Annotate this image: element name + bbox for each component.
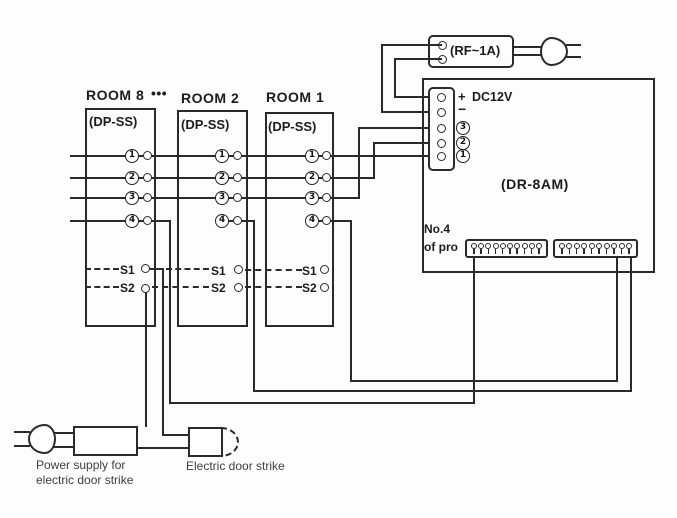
dr-note-line1: No.4 bbox=[424, 222, 450, 236]
rf-plug-prong-bottom bbox=[566, 56, 581, 58]
connector-strip-1 bbox=[465, 239, 548, 258]
ac-plug bbox=[28, 424, 56, 454]
rf-unit-label: (RF~1A) bbox=[450, 43, 500, 58]
room8-terminal-1: 1 bbox=[125, 149, 139, 163]
room1-terminal-4: 4 bbox=[305, 214, 319, 228]
dashed-s2-room8 bbox=[85, 286, 119, 288]
connector-pin bbox=[574, 243, 580, 249]
wire-room2-t4-run bbox=[253, 390, 632, 392]
room1-terminal-3-contact bbox=[322, 193, 331, 202]
room8-terminal-3: 3 bbox=[125, 191, 139, 205]
room2-terminal-2: 2 bbox=[215, 171, 229, 185]
door-strike bbox=[188, 427, 223, 457]
room2-s2-label: S2 bbox=[211, 281, 226, 295]
wiring-diagram: ROOM 8 ••• ROOM 2 ROOM 1 (DP-SS) (DP-SS)… bbox=[0, 0, 677, 518]
room8-s1-terminal bbox=[141, 264, 150, 273]
connector-pin bbox=[507, 243, 513, 249]
wire-s1-drop bbox=[162, 269, 164, 436]
room1-s1-label: S1 bbox=[302, 264, 317, 278]
rf-power-plug bbox=[540, 37, 568, 66]
dc-minus-label: − bbox=[458, 101, 466, 117]
room8-terminal-1-contact bbox=[143, 151, 152, 160]
room8-terminal-2: 2 bbox=[125, 171, 139, 185]
room-ellipsis: ••• bbox=[151, 85, 167, 101]
wire-row3-riser bbox=[358, 127, 360, 199]
room2-s1-label: S1 bbox=[211, 264, 226, 278]
connector-pin bbox=[566, 243, 572, 249]
room1-s2-terminal bbox=[320, 283, 329, 292]
wire-room8-t4-rise bbox=[473, 258, 475, 404]
connector-pin bbox=[485, 243, 491, 249]
wire-room8-t4 bbox=[70, 220, 171, 222]
ac-plug-prong-top bbox=[14, 431, 30, 433]
connector-strip-2 bbox=[553, 239, 638, 258]
door-strike-label: Electric door strike bbox=[186, 459, 285, 473]
dashed-s1-gap2 bbox=[245, 269, 302, 271]
door-strike-cap bbox=[221, 427, 239, 457]
ac-cord-top bbox=[54, 432, 74, 434]
connector-pin bbox=[596, 243, 602, 249]
room8-terminal-4: 4 bbox=[125, 214, 139, 228]
room2-terminal-1: 1 bbox=[215, 149, 229, 163]
ac-cord-bottom bbox=[54, 446, 74, 448]
dr-circled-terminal-3: 3 bbox=[456, 121, 470, 135]
connector-pin bbox=[589, 243, 595, 249]
room1-s2-label: S2 bbox=[302, 281, 317, 295]
rf-plug-prong-top bbox=[566, 44, 581, 46]
connector-pin bbox=[493, 243, 499, 249]
room8-s1-label: S1 bbox=[120, 263, 135, 277]
connector-pin bbox=[478, 243, 484, 249]
power-supply-label-line2: electric door strike bbox=[36, 473, 133, 487]
room2-title: ROOM 2 bbox=[181, 90, 239, 106]
wire-rf-minus-drop bbox=[381, 44, 383, 113]
connector-pin bbox=[536, 243, 542, 249]
room8-terminal-3-contact bbox=[143, 193, 152, 202]
room2-terminal-3: 3 bbox=[215, 191, 229, 205]
wire-ps-to-strike bbox=[136, 447, 190, 449]
room8-s2-terminal bbox=[141, 284, 150, 293]
connector-pin bbox=[581, 243, 587, 249]
room2-terminal-1-contact bbox=[233, 151, 242, 160]
connector-pin bbox=[471, 243, 477, 249]
wire-room2-t4-rise bbox=[630, 258, 632, 392]
room2-terminal-4-contact bbox=[233, 216, 242, 225]
room1-subtitle: (DP-SS) bbox=[268, 119, 316, 134]
dc-terminal-2 bbox=[437, 139, 446, 148]
connector-pin bbox=[619, 243, 625, 249]
connector-pin bbox=[604, 243, 610, 249]
room1-title: ROOM 1 bbox=[266, 89, 324, 105]
room2-terminal-4: 4 bbox=[215, 214, 229, 228]
wire-room8-t4-run bbox=[169, 402, 475, 404]
connector-pin bbox=[522, 243, 528, 249]
connector-pin bbox=[626, 243, 632, 249]
power-supply-label-line1: Power supply for bbox=[36, 458, 125, 472]
room1-terminal-2: 2 bbox=[305, 171, 319, 185]
wire-rf-plus-top bbox=[394, 58, 442, 60]
dr-unit-label: (DR-8AM) bbox=[501, 176, 569, 192]
rf-cord-top bbox=[512, 46, 542, 48]
dc-terminal-3 bbox=[437, 124, 446, 133]
dashed-s2-gap2 bbox=[245, 286, 302, 288]
dr-note-line2: of pro bbox=[424, 240, 458, 254]
room8-title: ROOM 8 bbox=[86, 87, 144, 103]
room8-terminal-4-contact bbox=[143, 216, 152, 225]
room2-terminal-2-contact bbox=[233, 173, 242, 182]
dc-voltage-label: DC12V bbox=[472, 90, 512, 104]
room1-s1-terminal bbox=[320, 265, 329, 274]
wire-room1-t4-rise bbox=[616, 258, 618, 382]
room8-terminal-2-contact bbox=[143, 173, 152, 182]
wire-row2-riser bbox=[373, 142, 375, 179]
wire-room2-t4-drop bbox=[253, 221, 255, 392]
ac-plug-prong-bottom bbox=[14, 445, 30, 447]
connector-pin bbox=[559, 243, 565, 249]
connector-pin bbox=[514, 243, 520, 249]
wire-s1-to-strike bbox=[162, 434, 190, 436]
wire-room1-t4-run bbox=[350, 380, 618, 382]
room1-terminal-1: 1 bbox=[305, 149, 319, 163]
connector-pin bbox=[500, 243, 506, 249]
room8-subtitle: (DP-SS) bbox=[89, 114, 137, 129]
wire-room8-t4-drop bbox=[169, 220, 171, 404]
wire-room1-t4-drop bbox=[350, 221, 352, 382]
room2-subtitle: (DP-SS) bbox=[181, 117, 229, 132]
dashed-s2-gap1 bbox=[152, 286, 209, 288]
dr-circled-terminal-2: 2 bbox=[456, 136, 470, 150]
room1-terminal-2-contact bbox=[322, 173, 331, 182]
connector-pin bbox=[611, 243, 617, 249]
room1-terminal-4-contact bbox=[322, 216, 331, 225]
room8-s2-label: S2 bbox=[120, 281, 135, 295]
wire-rf-minus-top bbox=[381, 44, 442, 46]
room2-s1-terminal bbox=[234, 265, 243, 274]
dc-terminal-1 bbox=[437, 152, 446, 161]
power-supply-box bbox=[73, 426, 138, 456]
connector-pin bbox=[529, 243, 535, 249]
wire-s2-drop bbox=[145, 289, 147, 427]
wire-rf-plus-drop bbox=[394, 58, 396, 98]
dc-terminal-minus bbox=[437, 108, 446, 117]
rf-cord-bottom bbox=[512, 54, 542, 56]
dc-terminal-plus bbox=[437, 93, 446, 102]
room1-terminal-1-contact bbox=[322, 151, 331, 160]
room1-terminal-3: 3 bbox=[305, 191, 319, 205]
dashed-s1-room8 bbox=[85, 268, 119, 270]
room2-terminal-3-contact bbox=[233, 193, 242, 202]
dashed-s1-gap1 bbox=[166, 268, 209, 270]
room2-s2-terminal bbox=[234, 283, 243, 292]
dr-circled-terminal-1: 1 bbox=[456, 149, 470, 163]
